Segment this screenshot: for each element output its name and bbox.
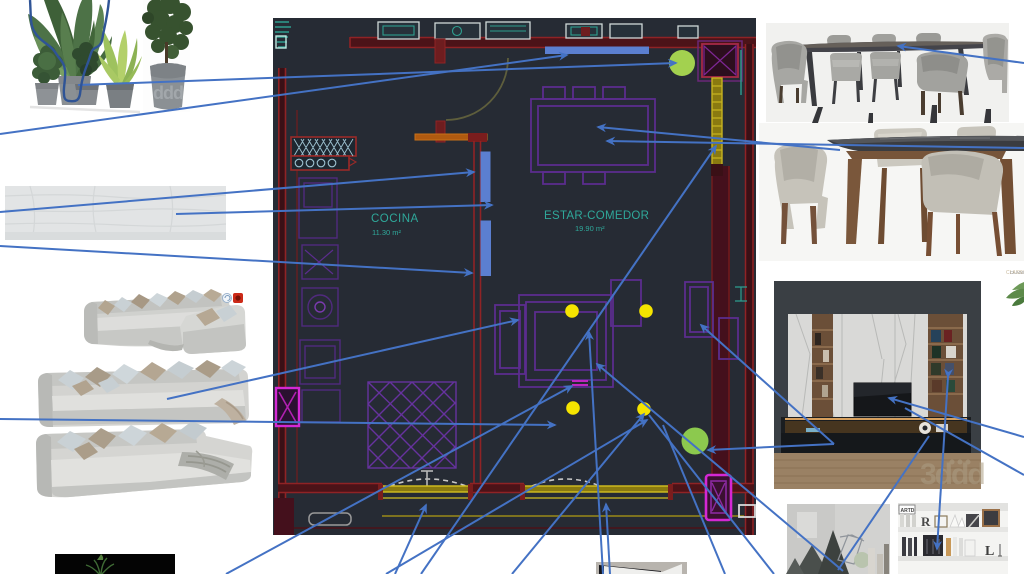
svg-text:ESTAR-COMEDOR: ESTAR-COMEDOR bbox=[544, 210, 649, 222]
svg-text:COCINA: COCINA bbox=[371, 213, 419, 225]
svg-text:R: R bbox=[921, 514, 931, 529]
svg-text:11.30 m²: 11.30 m² bbox=[372, 228, 402, 237]
svg-text:19.90 m²: 19.90 m² bbox=[575, 224, 605, 233]
svg-text:ddd: ddd bbox=[153, 83, 183, 103]
svg-text:CLASSIC: CLASSIC bbox=[1010, 270, 1024, 275]
svg-text:ARTD: ARTD bbox=[901, 508, 915, 514]
svg-text:L: L bbox=[985, 544, 994, 559]
